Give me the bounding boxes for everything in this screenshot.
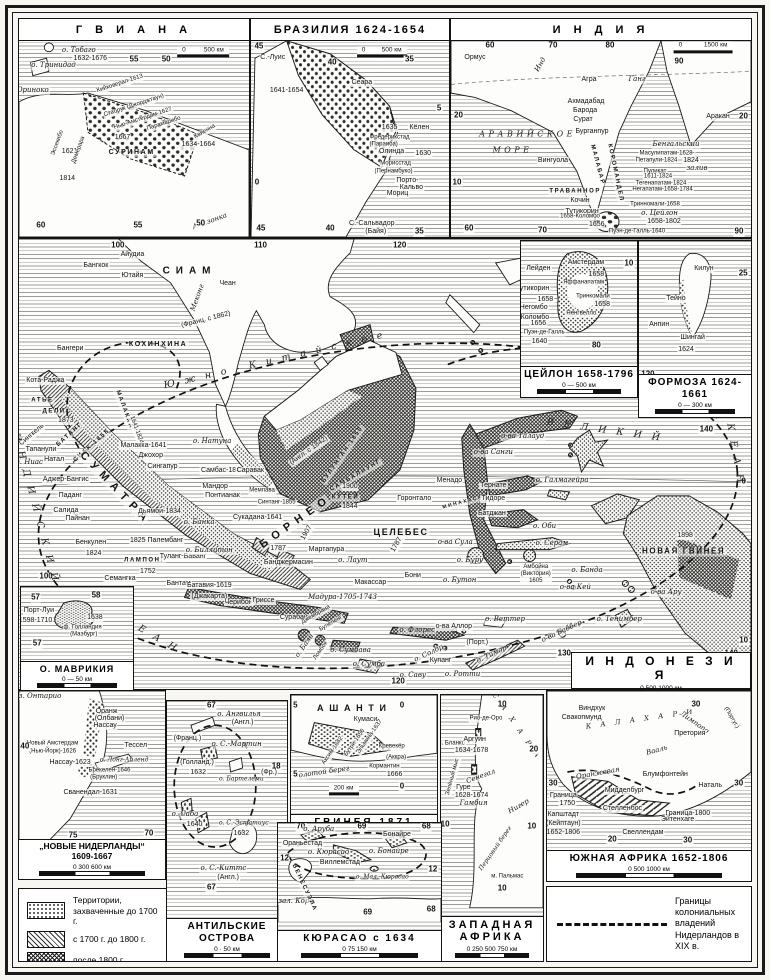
map-label: 1658-Коломбо: [559, 214, 601, 221]
map-label: 1666: [386, 771, 404, 779]
map-label: Аракан: [705, 113, 730, 121]
map-label: 10: [738, 637, 749, 646]
legend-label: с 1700 г. до 1800 г.: [73, 934, 145, 945]
map-label: Порт-Луи: [23, 607, 55, 615]
map-label: (Бруклин): [89, 775, 118, 782]
map-label: Новый Амстердам: [26, 740, 80, 747]
map-label: 57: [30, 594, 41, 603]
map-label: о. Галмагейра: [535, 477, 590, 485]
guinea-labels: 5А Ш А Н Т И0КумасиАксим-1642Бутри-1656Э…: [291, 695, 437, 831]
map-label: Тернате: [479, 482, 507, 490]
ceylon-title: ЦЕЙЛОН 1658-1796: [521, 369, 637, 381]
map-label: 1750: [559, 800, 577, 808]
map-label: Бурганпур: [574, 128, 609, 136]
map-label: КУТЕЙ: [331, 495, 361, 502]
safrica-caption: ЮЖНАЯ АФРИКА 1652-1806 0 500 1000 км: [547, 850, 751, 882]
map-label: о. Банка: [183, 519, 216, 527]
map-label: Тринномали-1658: [629, 202, 681, 209]
map-label: о. Банда: [570, 567, 603, 575]
map-label: 10: [452, 178, 463, 187]
map-label: Блумфонтейн: [642, 771, 689, 779]
map-label: Бонайре: [382, 831, 412, 839]
map-label: 1632: [189, 769, 207, 777]
indonesia-title: И Н Д О Н Е З И Я: [576, 655, 746, 683]
map-label: Малакка-1641: [120, 442, 168, 450]
map-label: 90: [674, 57, 685, 66]
antilles-title: АНТИЛЬСКИЕ ОСТРОВА: [167, 921, 287, 944]
map-label: Джохор: [138, 452, 164, 460]
map-label: Агра: [580, 76, 597, 84]
map-label: Батавия-1619: [186, 582, 233, 590]
map-label: о. Натуна: [192, 438, 232, 446]
map-label: НОВАЯ ГВИНЕЯ: [641, 547, 726, 556]
map-label: 1624: [677, 346, 695, 354]
antilles-caption: АНТИЛЬСКИЕ ОСТРОВА 0 · 50 км: [167, 918, 287, 961]
map-label: 0 500 км: [357, 46, 407, 57]
map-label: 10: [526, 822, 537, 831]
map-label: Инд: [533, 55, 548, 74]
map-label: о. Аруба: [302, 826, 335, 834]
ceylon-caption: ЦЕЙЛОН 1658-1796 0 — 500 км: [521, 366, 637, 398]
inset-ceylon: Амстердам10Лейден1658ЯффанапатамТутикори…: [520, 240, 638, 398]
inset-mauritius: 5758Порт-Луи1598-17101638ф. Голландия(Ма…: [20, 586, 134, 692]
map-label: ТРАВАННОР: [548, 189, 602, 196]
map-label: 1658: [537, 296, 555, 304]
boundary-legend-text: Границы колониальных владе­ний Нидерланд…: [675, 896, 741, 952]
map-label: Тидоре: [481, 495, 507, 503]
guiana-labels: 0 500 кмо. Тобаго1632-1676о. Тринидад555…: [19, 19, 249, 237]
map-label: 50: [161, 56, 172, 65]
map-label: 55: [129, 56, 140, 65]
map-label: Понтианак: [204, 492, 241, 500]
map-label: Пайнан: [64, 515, 90, 523]
map-label: 20: [607, 836, 618, 845]
map-label: В Е Л И К И Й: [545, 417, 665, 444]
scale-bar: [655, 409, 736, 414]
map-label: Ломбок: [311, 640, 330, 662]
map-label: Кайенна: [193, 123, 218, 142]
map-label: Граница: [549, 792, 578, 800]
map-label: о. Бартелеми: [218, 777, 265, 784]
map-label: оз. Онтарио: [18, 693, 62, 701]
map-label: 1640: [531, 338, 549, 346]
map-label: Петапули-1824: [635, 157, 679, 164]
inset-curacao: 706968о. АрубаБонайреОраньестадо. Кюраса…: [277, 822, 442, 962]
map-label: 60: [464, 225, 475, 234]
map-label: Анпин: [648, 322, 670, 330]
map-label: 57: [32, 640, 43, 649]
map-label: С.-Сальвадор: [348, 220, 396, 228]
map-label: 1814: [59, 175, 77, 183]
map-label: 5: [436, 105, 442, 114]
map-label: 1635: [381, 124, 399, 132]
guiana-title: Г В И А Н А: [19, 19, 249, 41]
map-label: Дьямби-1834: [137, 508, 182, 516]
map-label: 1825 Палембанг: [129, 537, 184, 545]
map-label: Салида: [52, 507, 79, 515]
inset-west-africa: 10Рио-де-ОроС А Х А Р Ам. БланкоАргуин16…: [440, 694, 544, 962]
map-label: 30: [548, 780, 559, 789]
map-label: Ахмадабад: [567, 98, 606, 106]
map-label: 1898: [676, 532, 694, 540]
indonesia-title-box: И Н Д О Н Е З И Я 0 500 1000 км: [571, 652, 751, 689]
map-label: Банджермасин: [263, 559, 314, 567]
map-label: о. Флорес: [398, 627, 436, 635]
map-label: Семангка: [103, 575, 136, 583]
map-label: о. С.-Эстатиус: [218, 821, 270, 828]
scale-bar: [39, 871, 144, 876]
map-label: 40: [19, 743, 30, 752]
map-label: Тринкомали: [575, 294, 611, 301]
map-label: о-ва Санги: [473, 449, 514, 457]
map-label: Ю ж н о - К и т а й с к о е: [162, 329, 388, 391]
map-label: КОРОМАНДЕЛ: [605, 142, 624, 203]
map-label: 40: [327, 58, 338, 67]
inset-antilles: 67о. Ангвилья(Англ.)(Франц.)о. С.-Мартин…: [166, 700, 288, 962]
map-label: 1632: [233, 830, 251, 838]
map-label: Тейно: [665, 295, 686, 303]
map-label: 55: [132, 222, 143, 231]
map-label: АРАВИЙСКОЕ: [478, 130, 577, 139]
legend-items: Территории, захваченные до 1700 г.с 1700…: [19, 895, 166, 962]
map-label: Гамбия: [459, 800, 489, 808]
map-label: ВЕНЕСУЭЛА: [290, 862, 319, 913]
curacao-title: КЮРАСАО с 1634: [278, 933, 441, 945]
map-label: Бангери: [56, 345, 84, 353]
map-label: (Фр.): [260, 769, 278, 777]
map-label: 0: [399, 783, 405, 792]
map-label: 1900: [341, 483, 359, 491]
map-label: 1667: [114, 134, 132, 142]
map-label: (Пернамбуко): [374, 168, 414, 175]
formosa-title: ФОРМОЗА 1624-1661: [639, 377, 751, 400]
map-label: Аджер-Бангис: [42, 476, 90, 484]
map-label: 69: [362, 908, 373, 917]
brazil-title: БРАЗИЛИЯ 1624-1654: [251, 19, 449, 41]
map-label: 1752: [139, 568, 157, 576]
map-label: Сукадана-1641: [232, 514, 283, 522]
map-label: Морисстад: [379, 161, 412, 168]
map-label: 70: [143, 829, 154, 838]
map-label: Ютайя: [121, 272, 145, 280]
map-label: 100: [110, 242, 125, 251]
map-label: о. Тенимбер: [596, 616, 643, 624]
legend-label: после 1800 г.: [73, 955, 124, 962]
map-label: Виллемстад: [319, 859, 361, 867]
map-label: 130: [557, 650, 572, 659]
map-label: о-ва Баббер: [540, 619, 585, 645]
legend-territories: Территории, захваченные до 1700 г.с 1700…: [18, 888, 167, 962]
map-label: о. Ротти: [444, 671, 481, 679]
legend-swatch-stipple: [27, 902, 65, 919]
map-label: Мадура-1705-1743: [307, 594, 378, 602]
map-label: 1824: [682, 157, 700, 165]
map-label: о. Сумбава: [329, 647, 372, 655]
map-label: Булеленг: [317, 614, 344, 634]
map-label: 1638: [86, 614, 104, 622]
map-label: о. Сумба: [352, 661, 386, 669]
map-label: 45: [255, 225, 266, 234]
map-label: о. Веттер: [484, 616, 526, 624]
map-label: Стелленбос: [602, 805, 643, 813]
map-label: А Ш А Н Т И: [316, 703, 389, 713]
map-label: Меконг: [190, 282, 208, 313]
map-label: Виндхук: [578, 705, 607, 713]
map-label: 60: [35, 222, 46, 231]
map-label: Барода: [572, 107, 598, 115]
map-label: 1658: [588, 271, 606, 279]
map-label: о. Кюрасао: [307, 849, 350, 857]
map-label: 200 км: [329, 785, 359, 796]
scale-text: 0 — 500 км: [537, 382, 621, 389]
scale-bar: [37, 683, 118, 688]
map-label: Айудиа: [120, 251, 146, 259]
map-label: Батджан: [477, 510, 507, 518]
dashed-boundary-sample: [557, 923, 667, 926]
inset-formosa: Килун25ТейноАнпинШингай1624120 ФОРМОЗА 1…: [638, 240, 752, 418]
map-label: Мориц: [386, 191, 410, 199]
map-label: Бони: [404, 572, 422, 580]
map-label: Гриссе: [251, 597, 275, 605]
map-label: 1844: [341, 503, 359, 511]
map-label: Негапатам-1658-1784: [631, 187, 693, 194]
atlas-page: 100110120АйудиаБангкокЮтайяС И А МЧеанМе…: [0, 0, 770, 980]
map-label: 10: [623, 260, 634, 269]
map-label: 120: [390, 677, 405, 686]
map-label: Сингапур: [146, 463, 178, 471]
map-label: Натал: [43, 456, 65, 464]
map-label: Пуэн-де-Галль: [523, 330, 566, 337]
map-label: 20: [453, 112, 464, 121]
map-label: Кота-Раджа: [25, 377, 65, 385]
map-label: о. Биллитон: [185, 547, 234, 555]
map-label: о. Лаут: [337, 557, 368, 565]
scale-bar: [576, 873, 723, 878]
map-label: 70: [548, 42, 559, 51]
map-label: о-ва Аллор: [435, 623, 473, 631]
map-label: 1787: [269, 545, 287, 553]
map-label: Наталь: [697, 782, 723, 790]
map-label: 50: [195, 219, 206, 228]
map-label: Кёлен: [408, 124, 430, 132]
map-label: 60: [485, 42, 496, 51]
map-label: (Маэбург): [69, 631, 98, 638]
map-label: КОХИНХИНА: [128, 341, 188, 349]
map-label: 0: [254, 178, 260, 187]
map-label: 1656: [530, 321, 548, 329]
map-label: 12: [279, 854, 290, 863]
inset-new-netherlands: оз. ОнтариоОранж(Олбани)НассауНовый Амст…: [18, 690, 166, 880]
map-label: Тапанули: [25, 446, 58, 454]
inset-south-africa: ВиндхукСвакопмундК А Л А Х А Р И30Лимпоп…: [546, 690, 752, 882]
map-label: 110: [253, 242, 268, 251]
map-label: Фредерикстад: [369, 134, 411, 141]
legend-row: после 1800 г.: [27, 952, 158, 962]
map-label: 1658: [593, 301, 611, 309]
map-label: о. Тимор: [475, 644, 509, 666]
map-label: МОРЕ: [492, 146, 534, 155]
map-label: МАЛАБАР: [588, 143, 606, 187]
map-label: СУРИНАМ: [108, 149, 156, 157]
map-label: Претория: [673, 730, 706, 738]
map-label: 80: [591, 341, 602, 350]
map-label: 1907: [300, 524, 316, 543]
map-label: о. С.-Мартин: [210, 741, 262, 749]
inset-guiana: 0 500 кмо. Тобаго1632-1676о. Тринидад555…: [18, 18, 250, 238]
map-label: Тутикорин: [520, 285, 550, 293]
map-label: Нигер: [506, 797, 531, 816]
map-label: Ганг: [628, 76, 647, 84]
map-label: 140: [699, 426, 714, 435]
map-label: (Франц.): [173, 735, 203, 743]
map-label: 10: [497, 885, 508, 894]
map-label: Перцовый берег: [478, 825, 515, 873]
scale-text: 0 250 500 750 км: [455, 946, 528, 953]
map-label: о. Саба: [171, 811, 200, 819]
map-label: (Англ. с 1842): [288, 434, 331, 467]
map-label: Олинда: [378, 148, 405, 156]
map-label: Саравак: [236, 467, 265, 475]
map-label: 5: [292, 701, 298, 710]
map-label: Бангкок: [82, 262, 109, 270]
map-label: Ормус: [463, 54, 486, 62]
map-label: 35: [404, 56, 415, 65]
map-label: Вааль: [645, 744, 670, 758]
map-label: ф. Голландия: [63, 624, 103, 631]
map-label: 1640: [186, 821, 204, 829]
map-label: 12: [427, 865, 438, 874]
map-label: о-ва Талауд: [500, 433, 545, 441]
newneth-title: „НОВЫЕ НИДЕРЛАНДЫ“ 1609-1667: [19, 842, 165, 862]
map-label: Оранжевая: [575, 766, 622, 782]
map-label: Купанг: [429, 657, 453, 665]
curacao-caption: КЮРАСАО с 1634 0 75 150 км: [278, 930, 441, 962]
map-label: Аксим-1642: [321, 735, 346, 767]
map-label: 69: [356, 823, 367, 832]
map-label: (Англ.): [216, 874, 240, 882]
map-label: Килун: [693, 265, 714, 273]
map-label: Мемпава: [248, 488, 276, 495]
map-label: 20: [738, 113, 749, 122]
map-label: 1787: [389, 535, 405, 554]
safrica-title: ЮЖНАЯ АФРИКА 1652-1806: [547, 853, 751, 865]
inset-india: 0 1500 км60708090ОрмусИндАграГангАхмадаб…: [450, 18, 752, 238]
map-label: 0 500 км: [177, 46, 229, 57]
map-label: 1598-1710: [20, 617, 53, 625]
map-label: (Англ.): [231, 719, 255, 727]
map-label: Кревекёр: [378, 744, 406, 751]
map-label: Нассау: [92, 722, 117, 730]
legend-row: Территории, захваченные до 1700 г.: [27, 895, 158, 927]
map-label: (Голланд.): [179, 759, 215, 767]
map-label: Яффанапатам: [562, 280, 605, 287]
scale-bar: [301, 953, 418, 958]
map-label: о. Буру: [456, 557, 484, 565]
map-label: Свеллендам: [621, 829, 664, 837]
india-labels: 0 1500 км60708090ОрмусИндАграГангАхмадаб…: [451, 19, 751, 237]
map-label: Макассар: [354, 579, 388, 587]
map-label: о-ва Кей: [559, 584, 592, 592]
scale-bar: [537, 389, 621, 394]
map-label: (Португ.): [721, 705, 740, 731]
map-label: о. Тобаго: [61, 47, 97, 55]
map-label: Ненгвелло: [565, 311, 597, 318]
map-label: 120: [392, 242, 407, 251]
map-label: Мартапура: [308, 546, 346, 554]
map-label: Негомбо: [520, 304, 549, 312]
map-label: о. С.-Киттс: [200, 865, 248, 873]
map-label: 1641-1654: [269, 87, 304, 95]
map-label: 30: [690, 701, 701, 710]
map-label: 90: [734, 228, 745, 237]
scale-text: 0 300 600 км: [39, 864, 144, 871]
map-label: о. Лонг-Айленд: [99, 757, 150, 764]
map-label: 67: [206, 884, 217, 893]
map-label: 0 1500 км: [674, 42, 733, 53]
map-label: 45: [253, 43, 264, 52]
map-label: о-ва Ару: [650, 589, 683, 597]
map-label: 1630: [414, 150, 432, 158]
map-label: 30: [733, 780, 744, 789]
map-label: Вингуола: [537, 157, 569, 165]
map-label: Рио-де-Оро: [468, 716, 503, 723]
map-label: 1824: [85, 550, 103, 558]
legend-row: с 1700 г. до 1800 г.: [27, 931, 158, 948]
map-label: 35: [414, 227, 425, 236]
map-label: о. Бонайре: [368, 848, 410, 856]
legend-swatch-cross: [27, 952, 65, 962]
map-label: 67: [206, 702, 217, 711]
map-label: (Порт.): [465, 639, 489, 647]
map-label: Чеан: [218, 280, 236, 288]
map-label: 80: [605, 42, 616, 51]
map-label: 1652-1806: [546, 829, 581, 837]
scale-text: 0 75 150 км: [301, 946, 418, 953]
map-label: (Нью-Йорк)-1626: [28, 749, 77, 756]
map-label: 0: [399, 701, 405, 710]
map-label: ЦЕЛЕБЕС: [373, 526, 430, 536]
map-label: Капштадт: [546, 812, 580, 820]
map-label: 1658-1802: [646, 218, 681, 226]
scale-text: 0 — 50 км: [37, 676, 118, 683]
map-label: 58: [91, 592, 102, 601]
inset-guinea: 5А Ш А Н Т И0КумасиАксим-1642Бутри-1656Э…: [290, 694, 438, 832]
map-label: Брёкелен-1646: [88, 768, 132, 775]
map-label: Мандор: [201, 483, 229, 491]
scale-bar: [184, 953, 270, 958]
legend-swatch-diag: [27, 931, 65, 948]
map-label: 68: [421, 823, 432, 832]
map-label: Аргуин: [462, 736, 486, 744]
map-label: С.-Луис: [259, 54, 286, 62]
map-label: 1634-1664: [181, 142, 216, 150]
map-label: о. Тринидад: [30, 62, 77, 70]
map-label: (Байя): [364, 228, 387, 236]
map-label: о-ва Сула: [437, 539, 474, 547]
wafrica-caption: ЗАПАДНАЯ АФРИКА 0 250 500 750 км: [441, 916, 543, 961]
map-label: 1632-1676: [73, 55, 108, 63]
map-label: МИНАХАСА: [441, 494, 485, 511]
map-label: о. Бутон: [442, 577, 477, 585]
map-label: (Аккра): [385, 754, 407, 761]
map-label: Кормантин: [368, 764, 400, 771]
map-label: Гуре: [455, 784, 472, 792]
map-label: о. Серам: [535, 540, 570, 548]
map-label: 68: [426, 905, 437, 914]
scale-text: 0 500 1000 км: [576, 866, 723, 873]
map-label: ДЕЛИ: [42, 409, 67, 416]
mauritius-caption: О. МАВРИКИЯ 0 — 50 км: [21, 661, 133, 691]
